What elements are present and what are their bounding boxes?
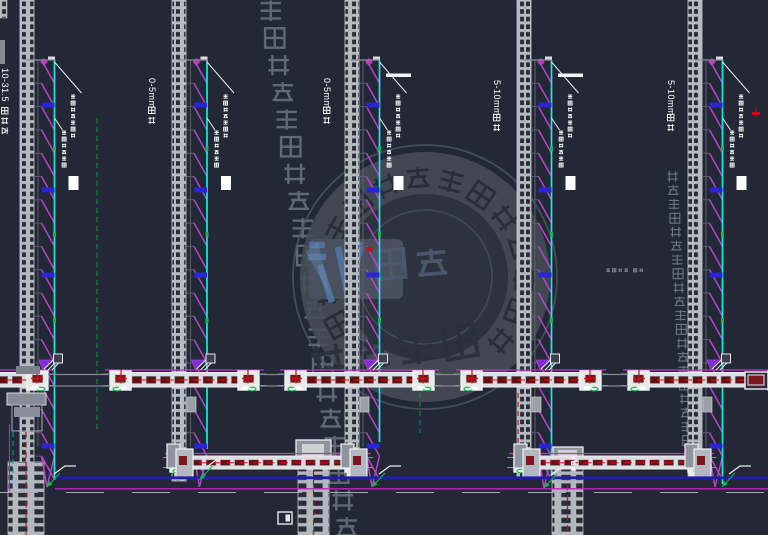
svg-text:0-5mm: 0-5mm — [147, 78, 157, 109]
svg-text:5-10mm: 5-10mm — [666, 80, 676, 116]
svg-text:5-10mm: 5-10mm — [492, 80, 502, 116]
svg-text:0-5mm: 0-5mm — [322, 78, 332, 109]
svg-text:10-31.5: 10-31.5 — [0, 68, 10, 102]
